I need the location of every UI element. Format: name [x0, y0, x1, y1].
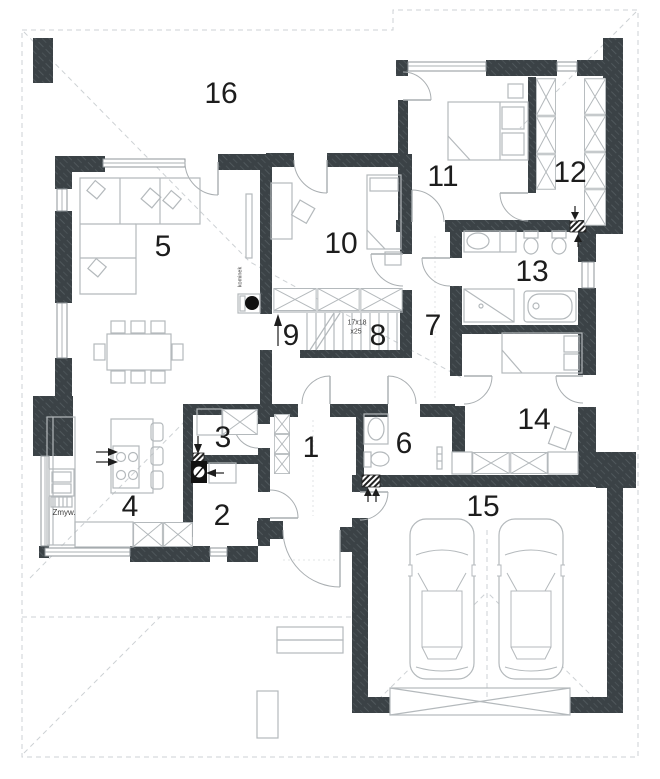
hall-wardrobe [274, 414, 289, 473]
kitchen-cabinets [75, 522, 192, 547]
bedroom14-wardrobe [452, 452, 578, 474]
dishwasher-label: Zmyw. [52, 509, 75, 517]
sofa [80, 178, 200, 294]
room-label-4: 4 [122, 492, 139, 522]
room-label-7: 7 [425, 311, 442, 341]
room-label-2: 2 [214, 501, 231, 531]
wardrobe12 [536, 79, 605, 226]
entrance-steps [277, 627, 343, 653]
room-label-9: 9 [283, 321, 300, 351]
floor-plan-drawing [0, 0, 660, 779]
fireplace-label: kominek [238, 267, 244, 287]
stairs-count-label: x25 [350, 329, 361, 336]
floor-plan: 1 2 3 4 5 6 7 8 9 10 11 12 13 14 15 16 1… [0, 0, 660, 779]
room-label-3: 3 [215, 423, 232, 453]
room-label-5: 5 [155, 232, 172, 262]
room-label-15: 15 [466, 492, 499, 522]
room-label-13: 13 [515, 257, 548, 287]
kitchen-arrows [96, 448, 118, 466]
room-label-10: 10 [324, 229, 357, 259]
tv-bench [246, 194, 252, 258]
room-label-1: 1 [303, 433, 320, 463]
kitchen-island [111, 419, 163, 493]
fireplace [238, 294, 260, 313]
porch-pillar [257, 691, 278, 738]
room-label-11: 11 [427, 162, 458, 192]
bedroom10-wardrobe [274, 288, 402, 310]
garage-door [390, 688, 570, 715]
dining-table [94, 321, 183, 383]
stairs-dimension-label: 17x18 [347, 320, 366, 327]
room-label-16: 16 [204, 79, 237, 109]
bedroom11-furniture [448, 84, 528, 160]
room-label-6: 6 [396, 429, 413, 459]
room-label-14: 14 [517, 405, 550, 435]
room-label-12: 12 [553, 158, 586, 188]
room-label-8: 8 [370, 321, 387, 351]
